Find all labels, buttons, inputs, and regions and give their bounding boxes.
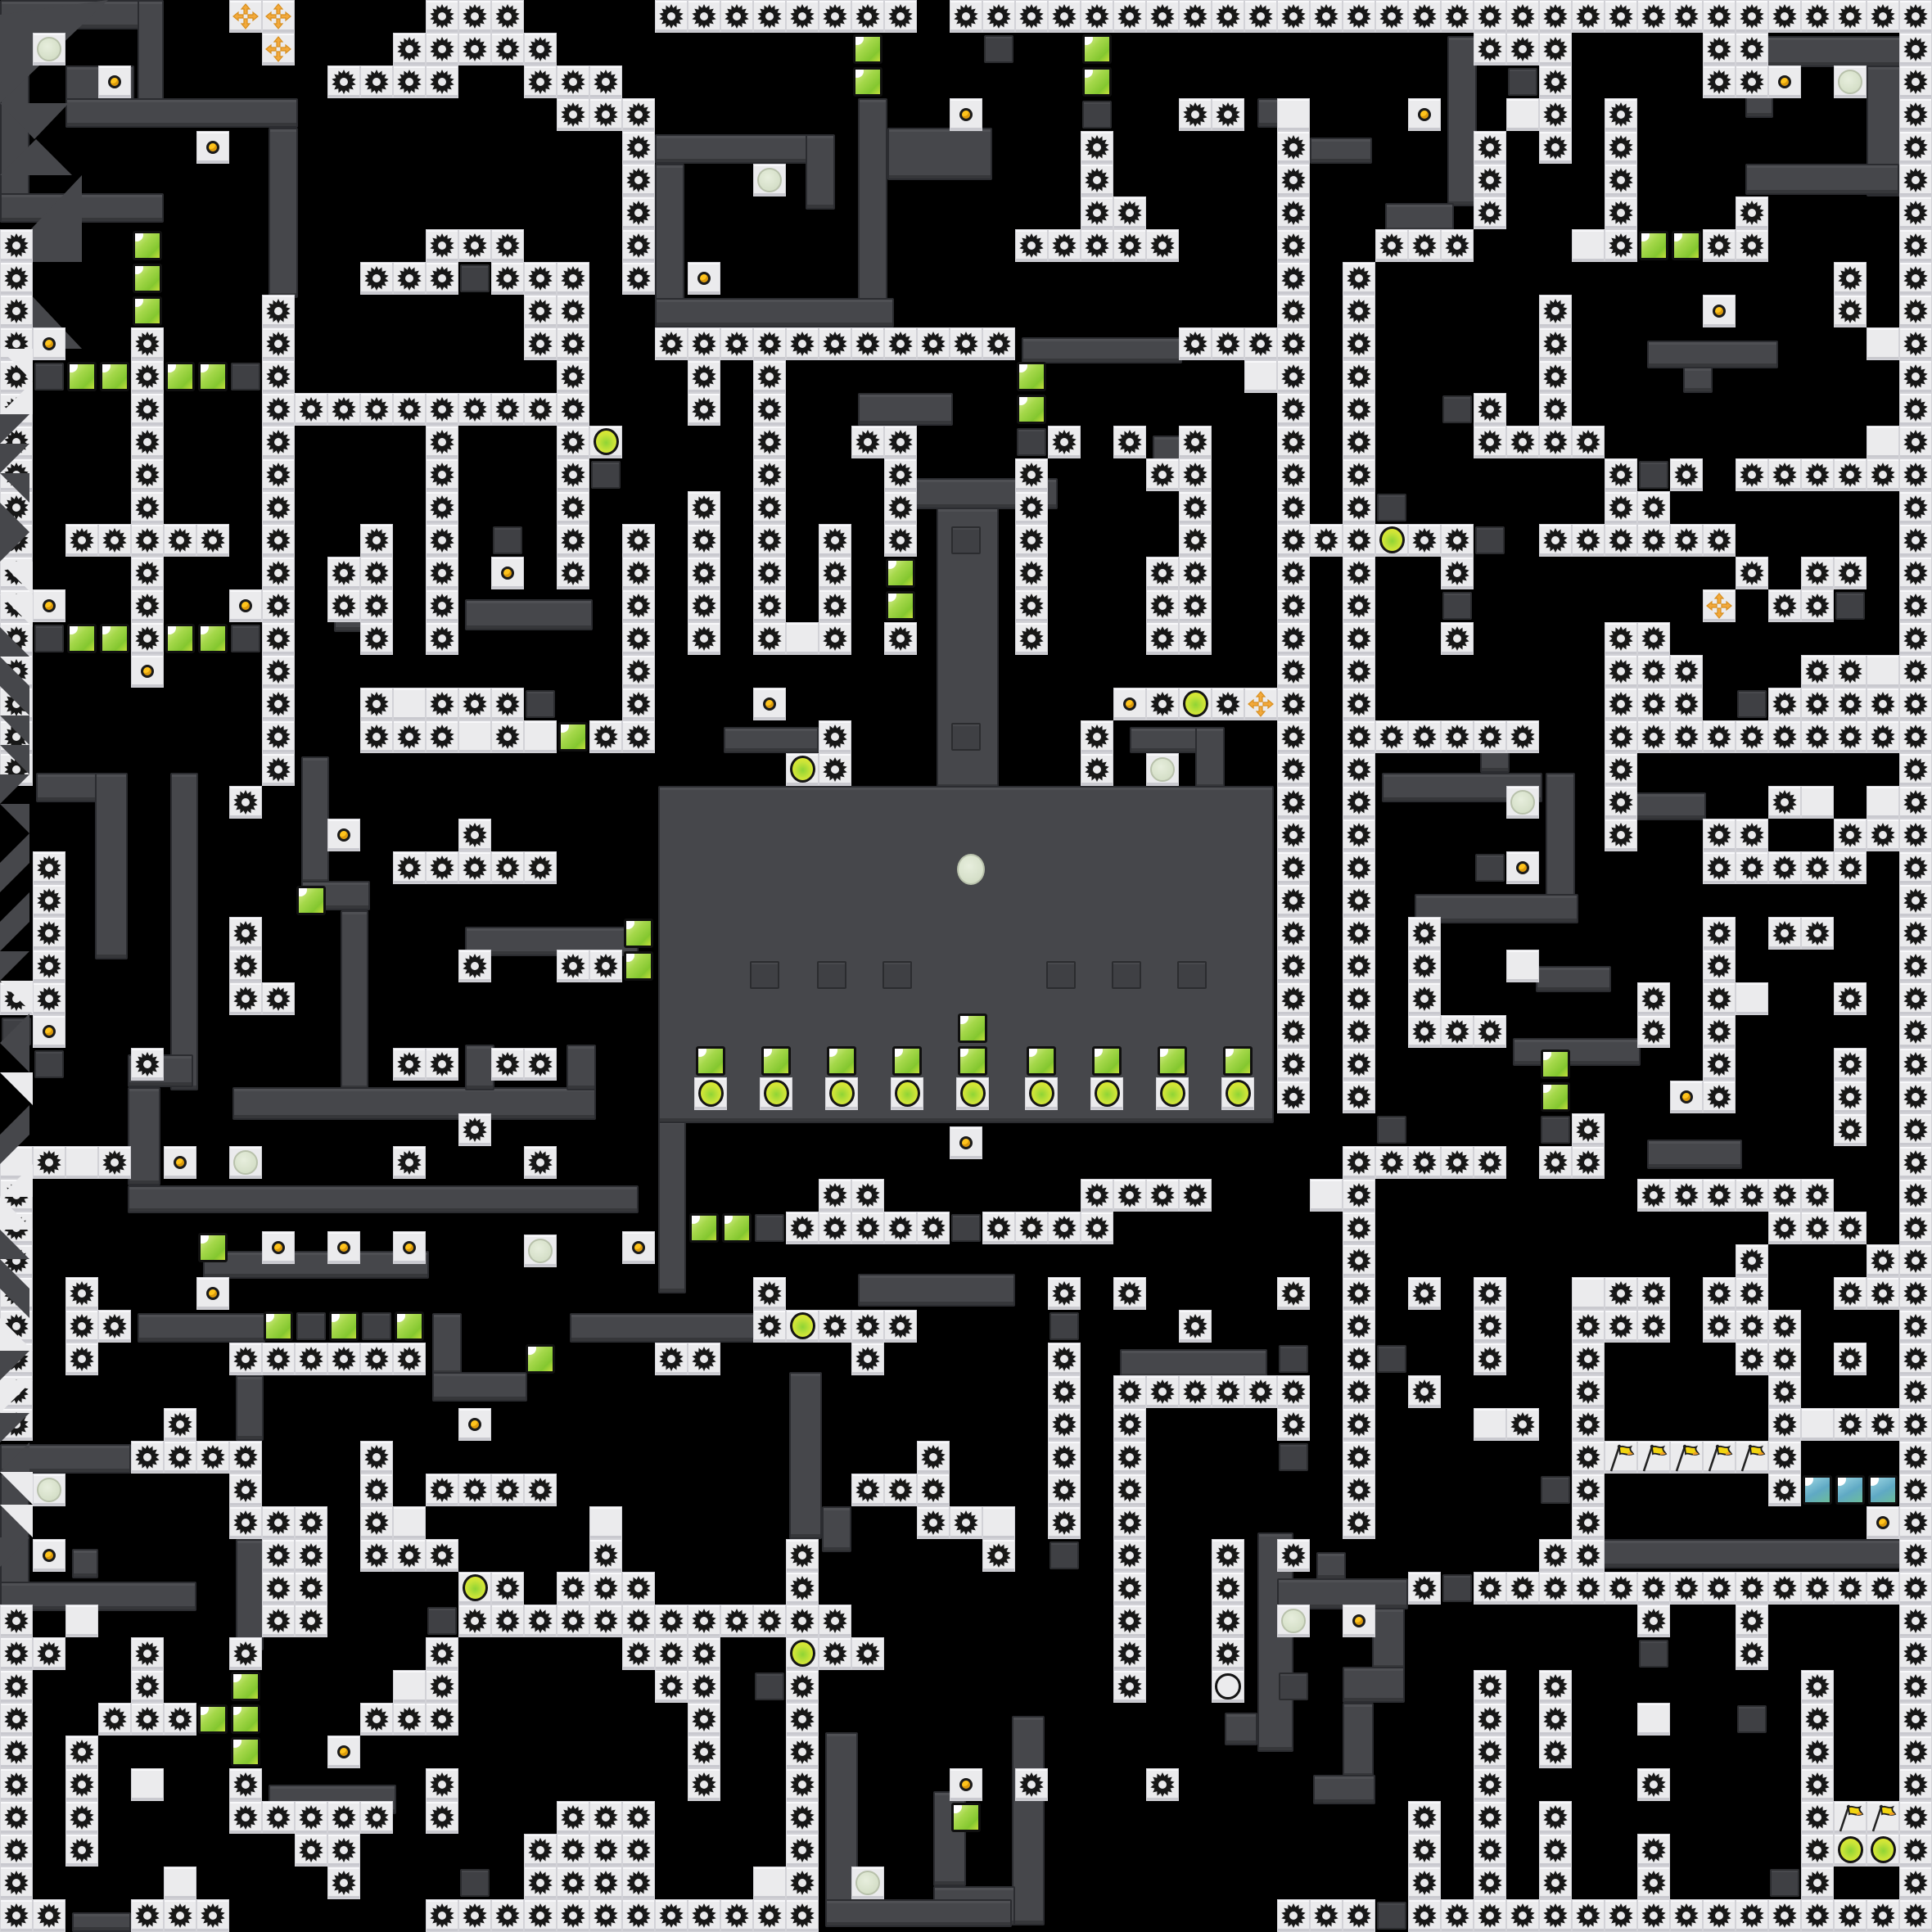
saw-hub: [1912, 962, 1920, 970]
wall-block: [724, 727, 819, 753]
green-block: [886, 558, 915, 588]
saw-hub: [372, 1486, 381, 1494]
wall-block: [1513, 1038, 1641, 1066]
saw-hub: [340, 1355, 348, 1363]
saw-hub: [1355, 1322, 1363, 1330]
saw-hub: [1355, 274, 1363, 282]
saw-hub: [765, 1617, 774, 1625]
saw-hub: [1912, 12, 1920, 20]
saw-hub: [12, 1879, 20, 1887]
saw-hub: [143, 1682, 151, 1690]
saw-hub: [274, 405, 282, 413]
saw-hub: [1813, 1191, 1821, 1199]
saw-hub: [1846, 307, 1854, 315]
saw-hub: [798, 12, 806, 20]
saw-hub: [1126, 1289, 1134, 1298]
saw-hub: [1453, 12, 1461, 20]
saw-hub: [700, 372, 708, 381]
saw-hub: [569, 340, 577, 348]
green-block: [231, 1737, 260, 1767]
saw-hub: [1289, 503, 1298, 512]
saw-hub: [1158, 241, 1167, 250]
saw-hub: [1355, 1420, 1363, 1429]
saw-hub: [241, 1453, 250, 1461]
saw-hub: [1715, 536, 1723, 544]
saw-hub: [12, 1650, 20, 1658]
saw-hub: [1486, 1027, 1494, 1036]
saw-hub: [1486, 438, 1494, 446]
saw-hub: [1519, 438, 1527, 446]
saw-hub: [1912, 1617, 1920, 1625]
saw-hub: [1126, 209, 1134, 217]
wall-block: [128, 1087, 160, 1185]
saw-hub: [1486, 1682, 1494, 1690]
saw-hub: [438, 241, 446, 250]
saw-hub: [340, 78, 348, 86]
saw-hub: [12, 1748, 20, 1756]
block-shine: [100, 362, 111, 372]
dark-block: [1770, 1869, 1799, 1897]
dark-block: [296, 1312, 325, 1340]
saw-hub: [1191, 340, 1199, 348]
saw-hub: [1912, 1289, 1920, 1298]
green-block: [722, 1213, 752, 1243]
saw-hub: [634, 1650, 643, 1658]
saw-hub: [896, 536, 905, 544]
wall-block: [72, 1912, 131, 1932]
saw-hub: [831, 1322, 839, 1330]
saw-hub: [1224, 1650, 1232, 1658]
ramp-tile: [1736, 982, 1768, 1015]
saw-hub: [1191, 1388, 1199, 1396]
saw-hub: [1715, 12, 1723, 20]
saw-hub: [1715, 1093, 1723, 1101]
saw-hub: [1027, 1781, 1036, 1789]
saw-hub: [765, 1322, 774, 1330]
saw-hub: [1257, 12, 1265, 20]
saw-hub: [274, 602, 282, 610]
saw-hub: [1453, 569, 1461, 577]
saw-hub: [1650, 503, 1658, 512]
saw-hub: [1781, 1191, 1789, 1199]
saw-hub: [438, 45, 446, 53]
saw-hub: [143, 1453, 151, 1461]
game-board[interactable]: [0, 0, 1932, 1932]
saw-hub: [1060, 1289, 1068, 1298]
temple-green-block: [958, 1013, 987, 1043]
saw-hub: [831, 634, 839, 643]
saw-hub: [1715, 1584, 1723, 1592]
saw-hub: [1355, 1257, 1363, 1265]
saw-hub: [471, 700, 479, 708]
green-block: [624, 951, 653, 981]
saw-hub: [274, 700, 282, 708]
saw-hub: [765, 503, 774, 512]
saw-hub: [503, 1912, 512, 1920]
saw-hub: [438, 569, 446, 577]
saw-hub: [634, 700, 643, 708]
saw-hub: [667, 1617, 675, 1625]
green-block: [296, 886, 326, 915]
saw-hub: [1355, 1388, 1363, 1396]
saw-hub: [241, 995, 250, 1003]
saw-hub: [1682, 1912, 1690, 1920]
saw-hub: [1551, 340, 1560, 348]
saw-hub: [569, 438, 577, 446]
saw-hub: [1912, 634, 1920, 643]
saw-hub: [12, 1846, 20, 1854]
saw-hub: [471, 831, 479, 839]
saw-hub: [1355, 1093, 1363, 1101]
saw-hub: [634, 1879, 643, 1887]
wall-block: [1225, 1713, 1257, 1745]
saw-hub: [1551, 1813, 1560, 1821]
saw-hub: [1191, 569, 1199, 577]
saw-hub: [438, 1912, 446, 1920]
saw-hub: [1355, 929, 1363, 937]
saw-hub: [405, 733, 413, 741]
saw-hub: [1060, 1519, 1068, 1527]
saw-hub: [1289, 438, 1298, 446]
saw-hub: [995, 1551, 1003, 1560]
saw-hub: [733, 1617, 741, 1625]
saw-hub: [405, 405, 413, 413]
saw-hub: [1355, 1158, 1363, 1167]
saw-hub: [765, 1289, 774, 1298]
saw-hub: [962, 340, 970, 348]
green-block: [1541, 1050, 1570, 1079]
saw-hub: [372, 700, 381, 708]
saw-hub: [1912, 1224, 1920, 1232]
saw-hub: [1289, 471, 1298, 479]
saw-hub: [1650, 667, 1658, 675]
saw-hub: [1289, 241, 1298, 250]
saw-hub: [340, 1846, 348, 1854]
ramp-tile: [589, 1506, 622, 1539]
saw-hub: [1682, 1584, 1690, 1592]
saw-hub: [372, 569, 381, 577]
saw-hub: [438, 1551, 446, 1560]
saw-hub: [700, 569, 708, 577]
saw-hub: [1257, 1388, 1265, 1396]
saw-hub: [1191, 438, 1199, 446]
wall-block: [232, 1087, 596, 1120]
saw-hub: [78, 1322, 86, 1330]
ramp-tile: [164, 1867, 196, 1899]
saw-hub: [1289, 1060, 1298, 1068]
saw-hub: [503, 1486, 512, 1494]
bubble-icon: [37, 1478, 61, 1502]
saw-hub: [1813, 1224, 1821, 1232]
saw-hub: [1748, 1322, 1756, 1330]
ramp-tile: [982, 1506, 1015, 1539]
saw-hub: [1289, 405, 1298, 413]
saw-hub: [143, 372, 151, 381]
coin-icon: [337, 828, 350, 842]
saw-hub: [1158, 700, 1167, 708]
saw-hub: [143, 569, 151, 577]
fruit-orb-icon: [829, 1080, 855, 1107]
saw-hub: [1289, 864, 1298, 872]
green-block: [624, 919, 653, 948]
green-block: [853, 34, 882, 64]
saw-hub: [1551, 1715, 1560, 1723]
saw-hub: [45, 864, 53, 872]
saw-hub: [1879, 12, 1887, 20]
green-block: [198, 1704, 228, 1734]
wall-block: [858, 393, 953, 426]
saw-hub: [1912, 143, 1920, 151]
coin-icon: [403, 1241, 416, 1254]
saw-hub: [274, 569, 282, 577]
saw-hub: [1781, 1584, 1789, 1592]
saw-hub: [1551, 1846, 1560, 1854]
saw-hub: [569, 307, 577, 315]
saw-hub: [12, 1617, 20, 1625]
saw-hub: [12, 1781, 20, 1789]
wall-block: [432, 1372, 527, 1402]
wall-block: [1647, 341, 1778, 368]
wall-block: [655, 298, 894, 327]
saw-hub: [45, 995, 53, 1003]
saw-hub: [1748, 733, 1756, 741]
saw-hub: [700, 1912, 708, 1920]
saw-hub: [1617, 798, 1625, 806]
temple-leg-block: [882, 961, 912, 989]
dark-block: [984, 35, 1013, 63]
saw-hub: [1093, 143, 1101, 151]
saw-hub: [1486, 1322, 1494, 1330]
saw-hub: [1912, 1027, 1920, 1036]
saw-hub: [45, 929, 53, 937]
saw-hub: [700, 503, 708, 512]
saw-hub: [1158, 1191, 1167, 1199]
saw-hub: [1355, 700, 1363, 708]
saw-hub: [1289, 634, 1298, 643]
saw-hub: [1912, 864, 1920, 872]
saw-hub: [1584, 536, 1592, 544]
ramp-tile: [393, 1670, 426, 1703]
saw-hub: [1912, 995, 1920, 1003]
saw-hub: [602, 78, 610, 86]
saw-hub: [765, 471, 774, 479]
saw-hub: [1158, 602, 1167, 610]
wall-block: [1120, 1349, 1267, 1379]
saw-hub: [1486, 12, 1494, 20]
saw-hub: [1551, 307, 1560, 315]
saw-hub: [1060, 1355, 1068, 1363]
saw-hub: [1158, 471, 1167, 479]
saw-hub: [896, 503, 905, 512]
wall-block: [1313, 1775, 1375, 1804]
dark-block: [1279, 1345, 1307, 1373]
saw-hub: [1027, 602, 1036, 610]
saw-hub: [634, 1813, 643, 1821]
coin-icon: [1123, 697, 1136, 711]
saw-hub: [1879, 1289, 1887, 1298]
ramp-tile: [1277, 98, 1310, 131]
saw-hub: [1912, 733, 1920, 741]
saw-hub: [1650, 733, 1658, 741]
saw-hub: [1289, 798, 1298, 806]
saw-hub: [569, 111, 577, 119]
saw-hub: [700, 1682, 708, 1690]
saw-hub: [569, 536, 577, 544]
saw-hub: [1355, 765, 1363, 774]
saw-hub: [78, 1748, 86, 1756]
saw-hub: [1748, 78, 1756, 86]
saw-hub: [1289, 307, 1298, 315]
saw-hub: [372, 536, 381, 544]
saw-hub: [1519, 1912, 1527, 1920]
coin-icon: [959, 1136, 973, 1149]
saw-hub: [274, 733, 282, 741]
saw-hub: [1027, 503, 1036, 512]
move-cross-icon: [265, 3, 291, 33]
saw-hub: [143, 1715, 151, 1723]
saw-hub: [1912, 372, 1920, 381]
saw-hub: [1912, 896, 1920, 905]
saw-hub: [1388, 12, 1396, 20]
saw-hub: [372, 1355, 381, 1363]
saw-hub: [1486, 1355, 1494, 1363]
saw-hub: [569, 962, 577, 970]
saw-hub: [274, 503, 282, 512]
saw-hub: [1158, 1781, 1167, 1789]
saw-hub: [1420, 1388, 1429, 1396]
saw-hub: [1912, 1126, 1920, 1134]
saw-hub: [1355, 602, 1363, 610]
wall-triangle: [0, 922, 29, 951]
saw-hub: [765, 1912, 774, 1920]
saw-hub: [1781, 1486, 1789, 1494]
block-shine: [198, 1233, 209, 1244]
saw-hub: [111, 1158, 119, 1167]
block-shine: [329, 1311, 340, 1322]
saw-hub: [1682, 700, 1690, 708]
bubble-icon: [1281, 1609, 1306, 1633]
saw-hub: [733, 12, 741, 20]
saw-hub: [111, 536, 119, 544]
saw-hub: [1551, 536, 1560, 544]
saw-hub: [1650, 995, 1658, 1003]
saw-hub: [1126, 1519, 1134, 1527]
saw-hub: [536, 1617, 544, 1625]
saw-hub: [1912, 438, 1920, 446]
saw-hub: [1486, 176, 1494, 184]
saw-hub: [1191, 1322, 1199, 1330]
saw-hub: [864, 438, 872, 446]
saw-hub: [1650, 1027, 1658, 1036]
saw-hub: [700, 1781, 708, 1789]
saw-hub: [1551, 143, 1560, 151]
wall-block: [1022, 337, 1182, 363]
saw-hub: [1551, 1748, 1560, 1756]
saw-hub: [798, 1715, 806, 1723]
saw-hub: [896, 12, 905, 20]
saw-hub: [536, 274, 544, 282]
saw-hub: [143, 1912, 151, 1920]
block-shine: [1835, 1475, 1846, 1486]
saw-hub: [634, 1912, 643, 1920]
saw-hub: [1912, 45, 1920, 53]
wall-block: [170, 773, 198, 1090]
dark-block: [1475, 526, 1504, 554]
saw-hub: [1322, 1912, 1330, 1920]
saw-hub: [1486, 143, 1494, 151]
temple-green-block: [827, 1046, 856, 1076]
saw-hub: [1912, 1813, 1920, 1821]
saw-hub: [1846, 471, 1854, 479]
block-shine: [558, 722, 569, 733]
saw-hub: [1289, 1388, 1298, 1396]
saw-hub: [1420, 1584, 1429, 1592]
block-shine: [886, 558, 896, 569]
saw-hub: [896, 1322, 905, 1330]
saw-hub: [1748, 209, 1756, 217]
green-block: [1017, 395, 1046, 424]
saw-hub: [1781, 1453, 1789, 1461]
saw-hub: [1912, 765, 1920, 774]
fruit-orb-icon: [1871, 1836, 1896, 1863]
saw-hub: [1420, 1027, 1429, 1036]
fruit-orb-icon: [1183, 690, 1208, 717]
saw-hub: [274, 995, 282, 1003]
saw-hub: [1355, 503, 1363, 512]
saw-hub: [503, 45, 512, 53]
saw-hub: [1617, 241, 1625, 250]
saw-hub: [569, 1912, 577, 1920]
saw-hub: [1584, 1388, 1592, 1396]
saw-hub: [1027, 536, 1036, 544]
saw-hub: [1912, 1322, 1920, 1330]
saw-hub: [1912, 1486, 1920, 1494]
saw-hub: [438, 733, 446, 741]
saw-hub: [471, 1486, 479, 1494]
saw-hub: [1813, 864, 1821, 872]
saw-hub: [438, 78, 446, 86]
saw-hub: [1355, 995, 1363, 1003]
saw-hub: [143, 471, 151, 479]
saw-hub: [1748, 1289, 1756, 1298]
ramp-tile: [1637, 1703, 1670, 1736]
block-shine: [1158, 1046, 1168, 1057]
saw-hub: [1584, 1453, 1592, 1461]
saw-hub: [798, 1813, 806, 1821]
saw-hub: [1420, 929, 1429, 937]
dark-block: [1639, 1640, 1668, 1668]
saw-hub: [995, 1224, 1003, 1232]
saw-hub: [1912, 176, 1920, 184]
coin-icon: [1713, 305, 1726, 318]
saw-hub: [1813, 1715, 1821, 1723]
dark-block: [591, 461, 620, 489]
saw-hub: [896, 438, 905, 446]
saw-hub: [78, 1846, 86, 1854]
saw-hub: [1420, 536, 1429, 544]
wall-block: [1372, 1608, 1405, 1670]
green-block: [264, 1311, 293, 1341]
block-shine: [1082, 67, 1093, 78]
saw-hub: [1355, 1289, 1363, 1298]
saw-hub: [1289, 1912, 1298, 1920]
saw-hub: [274, 307, 282, 315]
saw-hub: [1355, 1912, 1363, 1920]
wall-block: [1343, 1667, 1405, 1703]
saw-hub: [1355, 569, 1363, 577]
saw-hub: [1781, 864, 1789, 872]
saw-hub: [1650, 1322, 1658, 1330]
